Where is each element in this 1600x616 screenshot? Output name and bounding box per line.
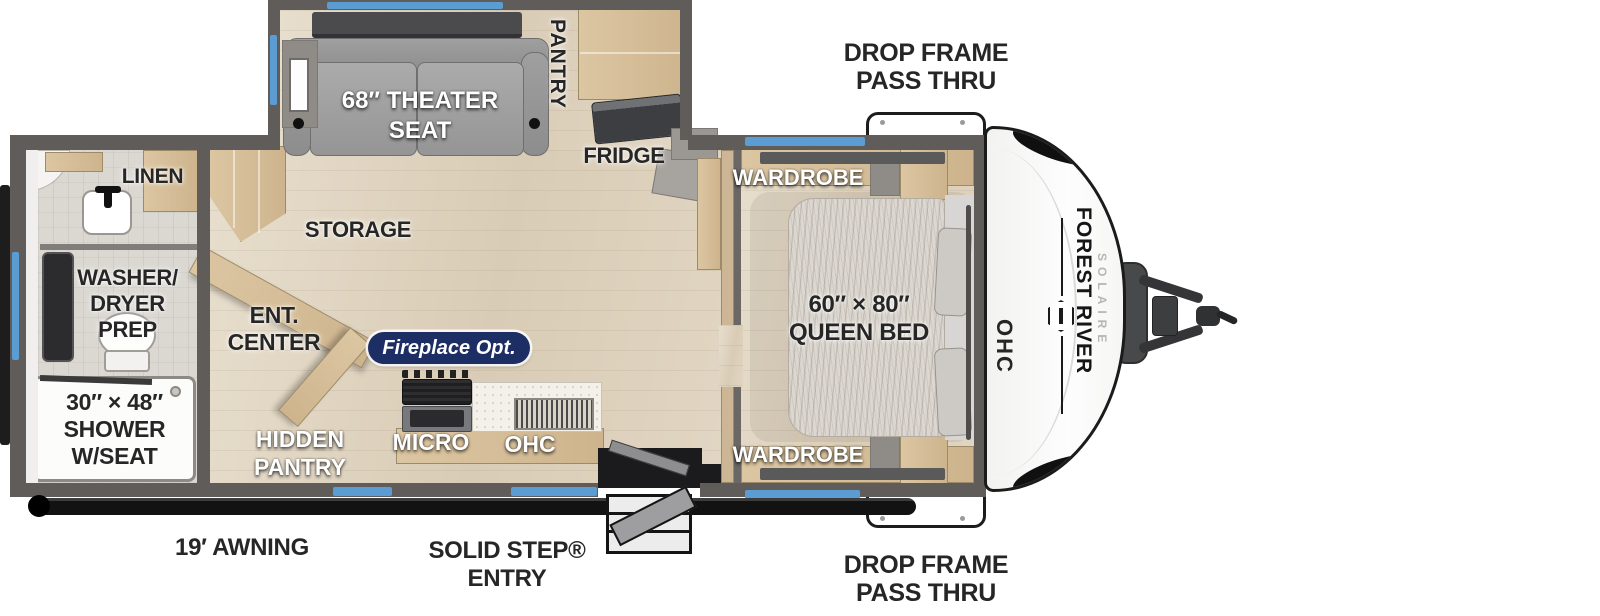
washer-dryer-label-1: WASHER/ bbox=[70, 266, 185, 289]
logo-line-bottom bbox=[1061, 336, 1063, 414]
ohc-bedroom-label: OHC bbox=[993, 286, 1016, 406]
hidden-pantry-label-1: HIDDEN bbox=[248, 427, 352, 451]
bedroom-wall-tan bbox=[721, 150, 734, 483]
bottom-window-2 bbox=[511, 487, 597, 496]
awning-end-cap bbox=[28, 495, 50, 517]
micro-label: MICRO bbox=[388, 430, 474, 454]
pantry-cabinet-seam bbox=[580, 52, 686, 54]
brand-name: FOREST RIVER bbox=[1071, 207, 1095, 427]
wardrobe-top-track bbox=[760, 152, 945, 164]
slide-top-window bbox=[327, 2, 503, 9]
stove-knobs bbox=[402, 370, 472, 378]
bedroom-wall-gray bbox=[734, 150, 741, 483]
drop-frame-top-label-2: PASS THRU bbox=[826, 68, 1026, 94]
headboard-line bbox=[966, 205, 971, 440]
rear-bumper bbox=[0, 185, 10, 445]
cupholder-left-icon bbox=[293, 118, 304, 129]
awning-label: 19′ AWNING bbox=[157, 535, 327, 560]
storage-label: STORAGE bbox=[296, 218, 420, 241]
solid-step-label-2: ENTRY bbox=[462, 566, 552, 591]
wardrobe-bottom-track bbox=[760, 468, 945, 480]
bottom-wall-left bbox=[10, 483, 598, 497]
top-wall-left bbox=[10, 135, 280, 150]
pass-thru-bottom-hinge-left bbox=[880, 516, 885, 521]
slide-side-window bbox=[289, 58, 309, 112]
sofa-table bbox=[312, 12, 522, 38]
drop-frame-top-label-1: DROP FRAME bbox=[826, 40, 1026, 66]
slide-right-wall bbox=[680, 0, 692, 140]
queen-bed-label-1: 60″ × 80″ bbox=[795, 292, 923, 317]
storage-cabinet-seam2 bbox=[258, 148, 260, 233]
hidden-pantry-label-2: PANTRY bbox=[244, 455, 356, 479]
awning-bar bbox=[36, 498, 916, 515]
tongue-jack bbox=[1152, 296, 1178, 336]
theater-seat-label-2: SEAT bbox=[380, 118, 460, 143]
wardrobe-top-label: WARDROBE bbox=[724, 166, 872, 189]
ent-center-label-2: CENTER bbox=[216, 330, 332, 354]
washer-dryer-label-3: PREP bbox=[70, 318, 185, 341]
shower-label-1: 30″ × 48″ bbox=[52, 390, 177, 414]
entry-corner bbox=[700, 464, 722, 484]
floorplan: LINEN WASHER/ DRYER PREP 30″ × 48″ SHOWE… bbox=[0, 0, 1600, 616]
drop-frame-bottom-label-2: PASS THRU bbox=[826, 580, 1026, 606]
ent-center-label-1: ENT. bbox=[234, 303, 314, 327]
toilet-tank bbox=[104, 350, 150, 372]
queen-bed-label-2: QUEEN BED bbox=[784, 320, 934, 345]
fireplace-option-label: Fireplace Opt. bbox=[382, 337, 515, 360]
wardrobe-bottom-label: WARDROBE bbox=[724, 443, 872, 466]
counter-vent-icon bbox=[514, 398, 594, 430]
theater-seat-arm-right bbox=[521, 52, 549, 156]
ohc-kitchen-label: OHC bbox=[492, 432, 568, 456]
washer-dryer-label-2: DRYER bbox=[70, 292, 185, 315]
cupholder-right-icon bbox=[529, 118, 540, 129]
rear-window bbox=[12, 252, 19, 360]
logo-line-top bbox=[1061, 218, 1063, 296]
storage-cabinet-seam bbox=[233, 148, 235, 228]
model-name: SOLAIRE bbox=[1095, 253, 1109, 383]
shower-label-2: SHOWER bbox=[52, 417, 177, 441]
bedroom-door-opening bbox=[719, 325, 743, 387]
faucet-stem-icon bbox=[104, 190, 112, 208]
bath-wall bbox=[197, 150, 210, 483]
pass-thru-top-hinge-left bbox=[880, 120, 885, 125]
bath-shelf bbox=[45, 152, 103, 172]
theater-seat-label-1: 68″ THEATER bbox=[330, 88, 510, 113]
rear-wall-inner bbox=[26, 150, 38, 483]
corner-cabinet-tan bbox=[697, 158, 721, 270]
slide-left-window bbox=[270, 35, 277, 105]
pass-thru-top-hinge-right bbox=[960, 120, 965, 125]
front-cap: OHC FOREST RIVER SOLAIRE bbox=[984, 126, 1126, 492]
linen-label: LINEN bbox=[105, 166, 200, 188]
shower-label-3: W/SEAT bbox=[52, 444, 177, 468]
pass-thru-bottom-hinge-right bbox=[960, 516, 965, 521]
oven-window bbox=[410, 410, 464, 427]
fireplace-option-badge: Fireplace Opt. bbox=[368, 332, 530, 364]
stove-cooktop bbox=[402, 379, 472, 405]
bedroom-top-window bbox=[745, 137, 865, 146]
fridge-label: FRIDGE bbox=[575, 144, 673, 167]
solid-step-label-1: SOLID STEP® bbox=[422, 538, 592, 563]
forest-river-logo-mark bbox=[1059, 308, 1063, 324]
pantry-label: PANTRY bbox=[546, 12, 568, 116]
bath-divider bbox=[40, 244, 197, 250]
drop-frame-bottom-label-1: DROP FRAME bbox=[826, 552, 1026, 578]
bottom-window-1 bbox=[333, 487, 392, 496]
